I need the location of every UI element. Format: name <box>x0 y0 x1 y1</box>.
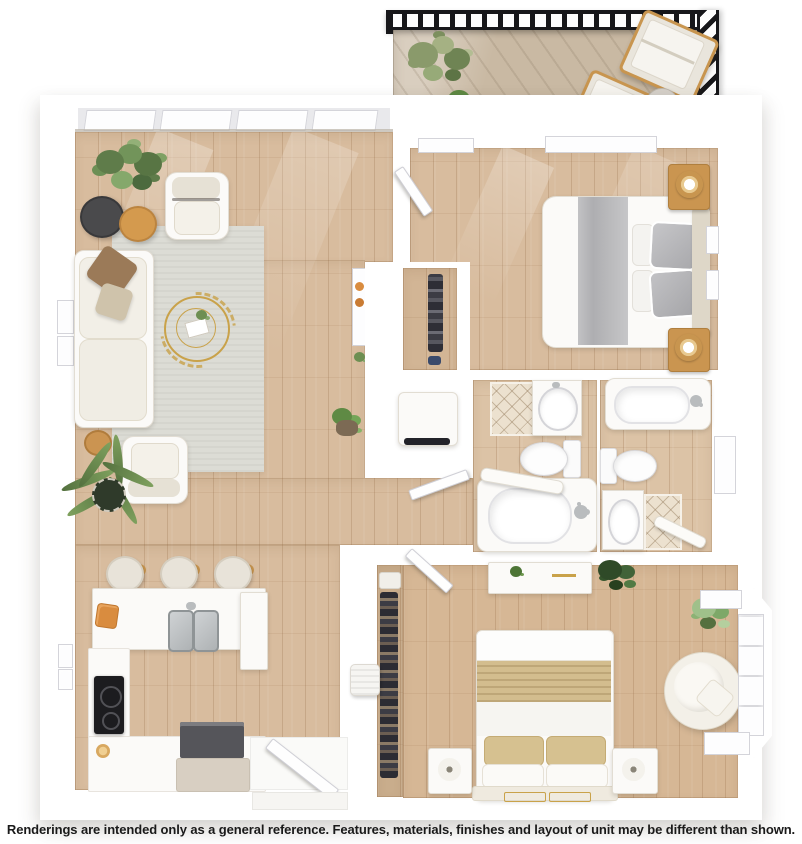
bedroom2-bed-mid <box>477 702 611 736</box>
black-side-table <box>80 196 124 238</box>
bedroom2-bed-topfold <box>477 631 611 662</box>
bedroom2-closet-clothes <box>380 592 398 778</box>
floor-vent-gold <box>549 792 591 802</box>
entry-threshold <box>252 792 348 810</box>
living-window-sill-line <box>75 129 393 132</box>
bath-main-tub-basin <box>488 488 572 544</box>
bath-main-tub-faucet <box>574 505 588 519</box>
kitchen-bowl <box>96 744 110 758</box>
kitchen-island-return <box>240 592 268 670</box>
armchair-seat <box>174 201 220 235</box>
coffee-table-plant <box>196 310 207 320</box>
floor-vent-gold <box>504 792 546 802</box>
left-wall-switch-plate <box>58 644 73 668</box>
cutting-board <box>94 603 119 630</box>
wall-jar <box>355 298 364 307</box>
armchair-bottom <box>122 436 188 504</box>
laundry-basket <box>350 664 380 696</box>
hallway-plant-pot <box>336 420 358 436</box>
left-wall-window-2 <box>57 336 74 366</box>
console-plant <box>510 566 522 577</box>
bedroom2-lamp-right <box>622 758 645 781</box>
master-bed-runner <box>578 197 628 345</box>
master-window-right <box>545 136 657 153</box>
bath2-tub-faucet <box>690 395 702 407</box>
sofa-cushion <box>79 339 147 421</box>
window-pane <box>84 110 157 131</box>
bar-stool <box>160 556 198 592</box>
wall-jar <box>355 282 364 291</box>
bath2-linen-shelf <box>714 436 736 494</box>
bath2-tub-basin <box>614 386 690 424</box>
bath-main-sink <box>538 387 578 431</box>
bay-window-sill-top <box>700 590 742 609</box>
balcony-tree <box>408 42 438 68</box>
bar-stool <box>214 556 252 592</box>
master-window-left <box>418 138 474 153</box>
bath-main-faucet <box>552 382 560 388</box>
bedroom2-pillow-white <box>482 764 544 788</box>
window-pane <box>312 110 379 131</box>
window-pane <box>160 110 233 131</box>
kitchen-sink-basin <box>193 610 219 652</box>
bath2-toilet-bowl <box>613 450 657 482</box>
washer-vent <box>404 438 450 445</box>
bay-window-sill-bottom <box>704 732 750 755</box>
bath2-vanity <box>602 490 644 550</box>
master-wall-art <box>706 226 719 254</box>
bath2-sink <box>608 499 640 545</box>
balcony-railing-post <box>386 10 393 34</box>
stove-burner <box>102 712 120 730</box>
console-gold-item <box>552 574 576 577</box>
bedroom2-plant <box>598 560 622 580</box>
master-lamp-bottom <box>675 334 702 361</box>
kitchen-appliance-dark <box>180 722 244 758</box>
refrigerator-top <box>176 758 250 792</box>
armchair-back <box>172 177 220 199</box>
master-wall-art <box>706 270 719 300</box>
closet-shoes <box>428 356 441 365</box>
kitchen-faucet <box>186 602 196 610</box>
armchair-top <box>165 172 229 240</box>
palm-pot <box>92 478 126 512</box>
monstera-plant <box>96 150 124 174</box>
bath2-tub <box>605 378 711 430</box>
floor-plan-rendering: Renderings are intended only as a genera… <box>0 0 802 844</box>
disclaimer-text: Renderings are intended only as a genera… <box>0 822 802 837</box>
bath-main-tile-mat <box>490 382 534 436</box>
kitchen-sink-basin <box>168 610 194 652</box>
bar-stool <box>106 556 144 592</box>
bath-main-toilet-bowl <box>520 442 568 476</box>
bedroom2-lamp-left <box>438 758 461 781</box>
bay-window-glass <box>738 614 764 736</box>
lounge-cushion <box>630 18 706 90</box>
bedroom2-bed-tan-band <box>477 661 611 702</box>
wood-side-table <box>119 206 157 242</box>
master-lamp-top <box>676 171 703 198</box>
wall-plant-small <box>354 352 365 362</box>
bath-main-vanity <box>532 380 582 436</box>
bedroom2-closet-folded-item <box>379 572 401 589</box>
bedroom2-pillow-tan <box>546 736 606 766</box>
left-wall-switch-plate <box>58 669 73 690</box>
bedroom2-console <box>488 562 592 594</box>
bedroom2-pillow-white <box>546 764 608 788</box>
closet-hanging-clothes <box>428 274 443 352</box>
stove-burner <box>100 686 122 708</box>
bedroom2-pillow-tan <box>484 736 544 766</box>
left-wall-window-1 <box>57 300 74 334</box>
window-pane <box>236 110 309 131</box>
